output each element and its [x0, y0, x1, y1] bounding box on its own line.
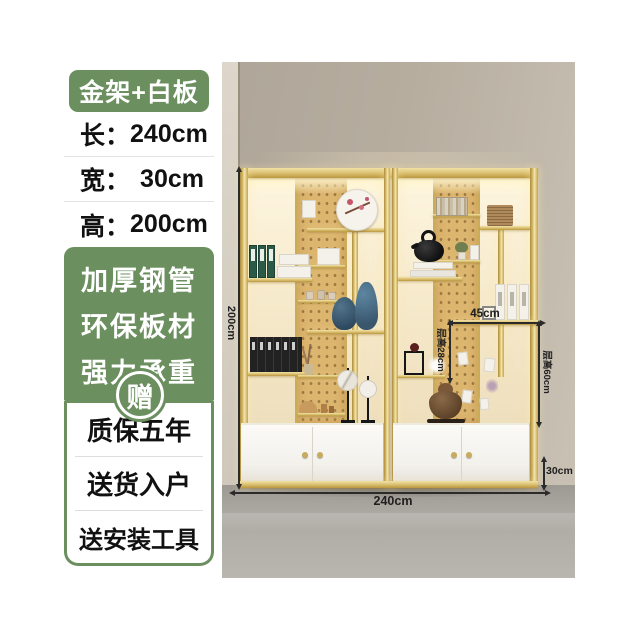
monk-figure-decor	[427, 383, 465, 423]
dim-label-layer-small: 层高28cm	[434, 321, 446, 379]
white-box-stack-decor	[277, 254, 311, 278]
shelf-board	[307, 330, 384, 334]
spec-value: 30cm	[140, 165, 204, 194]
book	[410, 270, 456, 277]
spec-panel: 长： 240cm 宽： 30cm 高： 200cm	[64, 112, 214, 247]
dim-label-layer-large: 层高60cm	[540, 343, 552, 401]
binder-label	[522, 292, 526, 306]
binder-label	[260, 249, 264, 261]
cups-decor	[306, 290, 338, 300]
arch-toy	[299, 401, 317, 413]
book-stack-decor	[410, 262, 456, 277]
dim-label-total-height: 200cm	[225, 295, 237, 351]
polaroid	[457, 351, 469, 365]
fan-circle	[337, 370, 358, 391]
shelf-board	[480, 226, 530, 230]
wooden-toys-decor	[297, 397, 337, 413]
shelf-board	[307, 228, 384, 232]
small-boxes-decor	[317, 248, 340, 265]
led-glow-right	[398, 178, 530, 194]
door-gap	[461, 427, 462, 483]
dim-line-total-height	[238, 172, 240, 484]
display-shelf	[240, 168, 538, 488]
gift-glyph: 赠	[127, 376, 154, 415]
vase	[304, 364, 314, 375]
spec-label: 宽：	[80, 161, 130, 197]
door-gap	[312, 427, 313, 483]
book	[413, 262, 453, 269]
fan-circle	[359, 380, 377, 398]
binder-labels	[252, 342, 300, 350]
service-item: 送货入户	[75, 457, 203, 511]
shelf-board	[248, 278, 312, 282]
spec-row-length: 长： 240cm	[64, 112, 214, 157]
mini-books-row-decor	[436, 197, 468, 216]
dim-line-shelf-width	[453, 322, 540, 324]
display-stand-decor	[402, 343, 428, 375]
door-knob	[302, 452, 308, 458]
green-binders-decor	[249, 245, 277, 278]
black-binders-decor	[250, 337, 302, 372]
door-knob	[466, 452, 472, 458]
product-card: 金架+白板 长： 240cm 宽： 30cm 高： 200cm 加厚钢管 环保板…	[0, 0, 640, 640]
dim-label-total-width: 240cm	[361, 495, 425, 507]
binder-label	[498, 292, 502, 306]
stand-frame	[404, 351, 424, 375]
info-sidebar: 金架+白板 长： 240cm 宽： 30cm 高： 200cm 加厚钢管 环保板…	[64, 70, 214, 566]
photo-frame	[470, 245, 479, 260]
dried-posy	[486, 378, 498, 394]
cup	[317, 290, 325, 300]
polaroid	[483, 357, 495, 372]
plant-pot	[458, 252, 466, 260]
feature-line: 加厚钢管	[64, 259, 214, 298]
plates-stack-decor	[487, 205, 513, 226]
service-item: 送安装工具	[67, 511, 211, 564]
door-knob	[451, 452, 457, 458]
dried-branch-decor	[300, 340, 318, 375]
blossom-flower	[359, 205, 364, 210]
box	[277, 266, 311, 278]
spec-label: 高：	[80, 207, 130, 243]
gift-badge: 赠	[113, 368, 167, 422]
dim-line-layer-small	[449, 325, 451, 378]
spec-row-height: 高： 200cm	[64, 202, 214, 247]
frame-post-center-a	[384, 168, 390, 488]
block	[321, 404, 327, 413]
service-panel: 质保五年 送货入户 送安装工具	[64, 400, 214, 566]
binder-label	[251, 249, 255, 261]
product-variant-badge: 金架+白板	[69, 70, 209, 112]
cabinet-left	[241, 423, 383, 481]
dim-label-cabinet-height: 30cm	[546, 465, 575, 477]
frame-base-bar	[240, 481, 538, 488]
dim-line-cabinet-height	[543, 462, 545, 485]
blossom-plate-decor	[336, 189, 378, 231]
polaroid	[479, 398, 489, 411]
dim-label-shelf-width: 45cm	[459, 308, 511, 320]
frame-post-right	[530, 168, 538, 488]
blossom-flower	[365, 197, 369, 201]
pegboard-card-decor	[302, 200, 316, 218]
spec-value: 240cm	[130, 120, 208, 149]
spec-value: 200cm	[130, 210, 208, 239]
cabinet-right	[393, 423, 529, 481]
spec-label: 长：	[80, 116, 130, 152]
monk-body	[429, 391, 462, 419]
fan-display-decor	[333, 362, 382, 423]
binder-label	[510, 292, 514, 306]
block	[329, 406, 334, 413]
box	[279, 254, 309, 265]
ornament-ball	[410, 343, 419, 352]
door-knob	[317, 452, 323, 458]
feature-line: 环保板材	[64, 305, 214, 344]
teapot-decor	[413, 230, 446, 263]
blossom-flower	[347, 199, 353, 205]
cup	[306, 291, 314, 300]
binder-label	[269, 249, 273, 261]
spec-row-width: 宽： 30cm	[64, 157, 214, 202]
blue-vase-round-decor	[332, 297, 357, 330]
plant-and-frame-decor	[455, 242, 479, 260]
shelf-board	[398, 277, 462, 281]
product-photo: 200cm 240cm 45cm 层高28cm 层高60cm 30cm	[222, 62, 575, 578]
cup	[328, 292, 336, 300]
